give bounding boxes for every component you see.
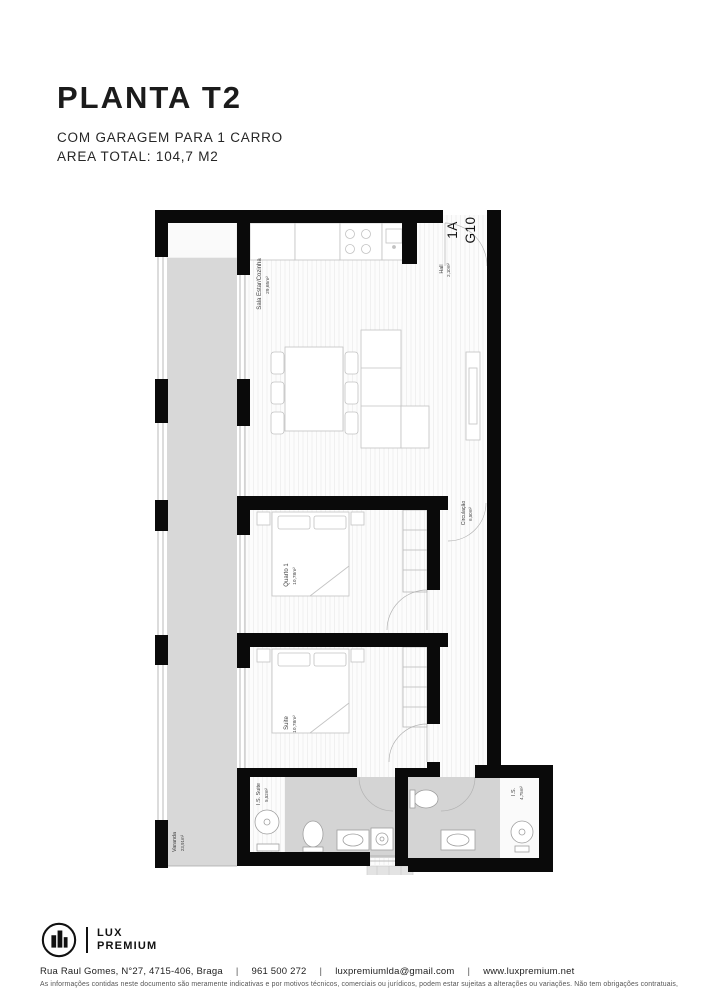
label-hall-area: 2,10m² bbox=[446, 263, 451, 277]
floor-plan: 1A G10 Sala Estar/Cozinha 29,65m² Hall 2… bbox=[145, 200, 565, 875]
wall-is-suite-top bbox=[250, 768, 357, 777]
wall-right bbox=[487, 210, 501, 768]
label-circulacao-name: Circulação bbox=[461, 501, 467, 526]
label-sala-area: 29,65m² bbox=[265, 276, 271, 294]
wall-hall-stub bbox=[402, 222, 417, 264]
disclaimer-text: As informações contidas neste documento … bbox=[40, 981, 687, 988]
stove bbox=[340, 223, 382, 260]
label-sala-name: Sala Estar/Cozinha bbox=[257, 258, 263, 310]
logo-text: LUX PREMIUM bbox=[97, 927, 157, 952]
wall-is-right bbox=[539, 765, 553, 872]
label-suite-name: Suite bbox=[284, 716, 290, 730]
phone-text: 961 500 272 bbox=[252, 966, 307, 977]
wall-divider-quarto1 bbox=[237, 496, 448, 510]
wall-bath-middle bbox=[395, 768, 408, 866]
wall-is-bottom bbox=[408, 858, 553, 872]
balcony-floor bbox=[167, 258, 237, 866]
dining-table bbox=[271, 347, 358, 434]
footer: LUX PREMIUM Rua Raul Gomes, N°27, 4715-4… bbox=[40, 921, 687, 988]
email-text: luxpremiumlda@gmail.com bbox=[335, 966, 454, 977]
separator: | bbox=[236, 966, 239, 977]
label-is-suite-area: 5,52m² bbox=[264, 788, 269, 802]
toilet-suite bbox=[303, 821, 323, 847]
shower-suite bbox=[255, 810, 279, 834]
label-quarto1-name: Quarto 1 bbox=[284, 563, 290, 587]
wall-bottom-left bbox=[237, 852, 370, 866]
logo-line2: PREMIUM bbox=[97, 940, 157, 953]
wall-divider-suite bbox=[237, 633, 448, 647]
vanity-suite bbox=[337, 830, 369, 850]
subtitle-area-total: AREA TOTAL: 104,7 M2 bbox=[57, 149, 283, 164]
exterior-step bbox=[367, 866, 413, 875]
building-in-circle-icon bbox=[40, 921, 78, 959]
label-hall-name: Hall bbox=[439, 265, 445, 274]
logo-line1: LUX bbox=[97, 927, 157, 940]
sink-is bbox=[511, 821, 533, 843]
subtitle-garage: COM GARAGEM PARA 1 CARRO bbox=[57, 130, 283, 145]
label-quarto1-area: 10,78m² bbox=[292, 567, 298, 585]
floor-plan-svg: 1A G10 Sala Estar/Cozinha 29,65m² Hall 2… bbox=[145, 200, 565, 875]
wall-corridor-2 bbox=[427, 647, 440, 724]
balcony-top-recess bbox=[167, 221, 237, 258]
website-text: www.luxpremium.net bbox=[483, 966, 574, 977]
contact-row: Rua Raul Gomes, N°27, 4715-406, Braga|96… bbox=[40, 966, 687, 977]
kitchen-counter bbox=[250, 223, 406, 260]
label-varanda-name: Varanda bbox=[172, 832, 178, 852]
logo: LUX PREMIUM bbox=[40, 921, 687, 959]
toilet-is bbox=[414, 790, 438, 808]
label-is-area: 4,75m² bbox=[519, 786, 524, 800]
wall-top bbox=[155, 210, 443, 223]
document-page: PLANTA T2 COM GARAGEM PARA 1 CARRO AREA … bbox=[0, 0, 707, 1000]
label-varanda-area: 23,91m² bbox=[180, 834, 185, 851]
label-suite-area: 10,78m² bbox=[292, 715, 298, 733]
label-circulacao-area: 6,50m² bbox=[468, 507, 473, 521]
unit-label-line2: G10 bbox=[463, 216, 478, 243]
tv-unit bbox=[466, 352, 480, 440]
separator: | bbox=[320, 966, 323, 977]
bed-suite bbox=[257, 649, 364, 733]
separator: | bbox=[468, 966, 471, 977]
page-title: PLANTA T2 bbox=[57, 80, 283, 116]
vanity-is bbox=[441, 830, 475, 850]
washing-machine bbox=[371, 828, 393, 850]
label-is-suite-name: I.S. Suite bbox=[256, 783, 262, 805]
header: PLANTA T2 COM GARAGEM PARA 1 CARRO AREA … bbox=[57, 80, 283, 168]
label-is-name: I.S. bbox=[511, 788, 517, 796]
logo-divider bbox=[86, 927, 88, 953]
address-text: Rua Raul Gomes, N°27, 4715-406, Braga bbox=[40, 966, 223, 977]
wall-corridor-1 bbox=[427, 510, 440, 590]
unit-label-line1: 1A bbox=[445, 221, 460, 239]
bed-quarto1 bbox=[257, 512, 364, 596]
